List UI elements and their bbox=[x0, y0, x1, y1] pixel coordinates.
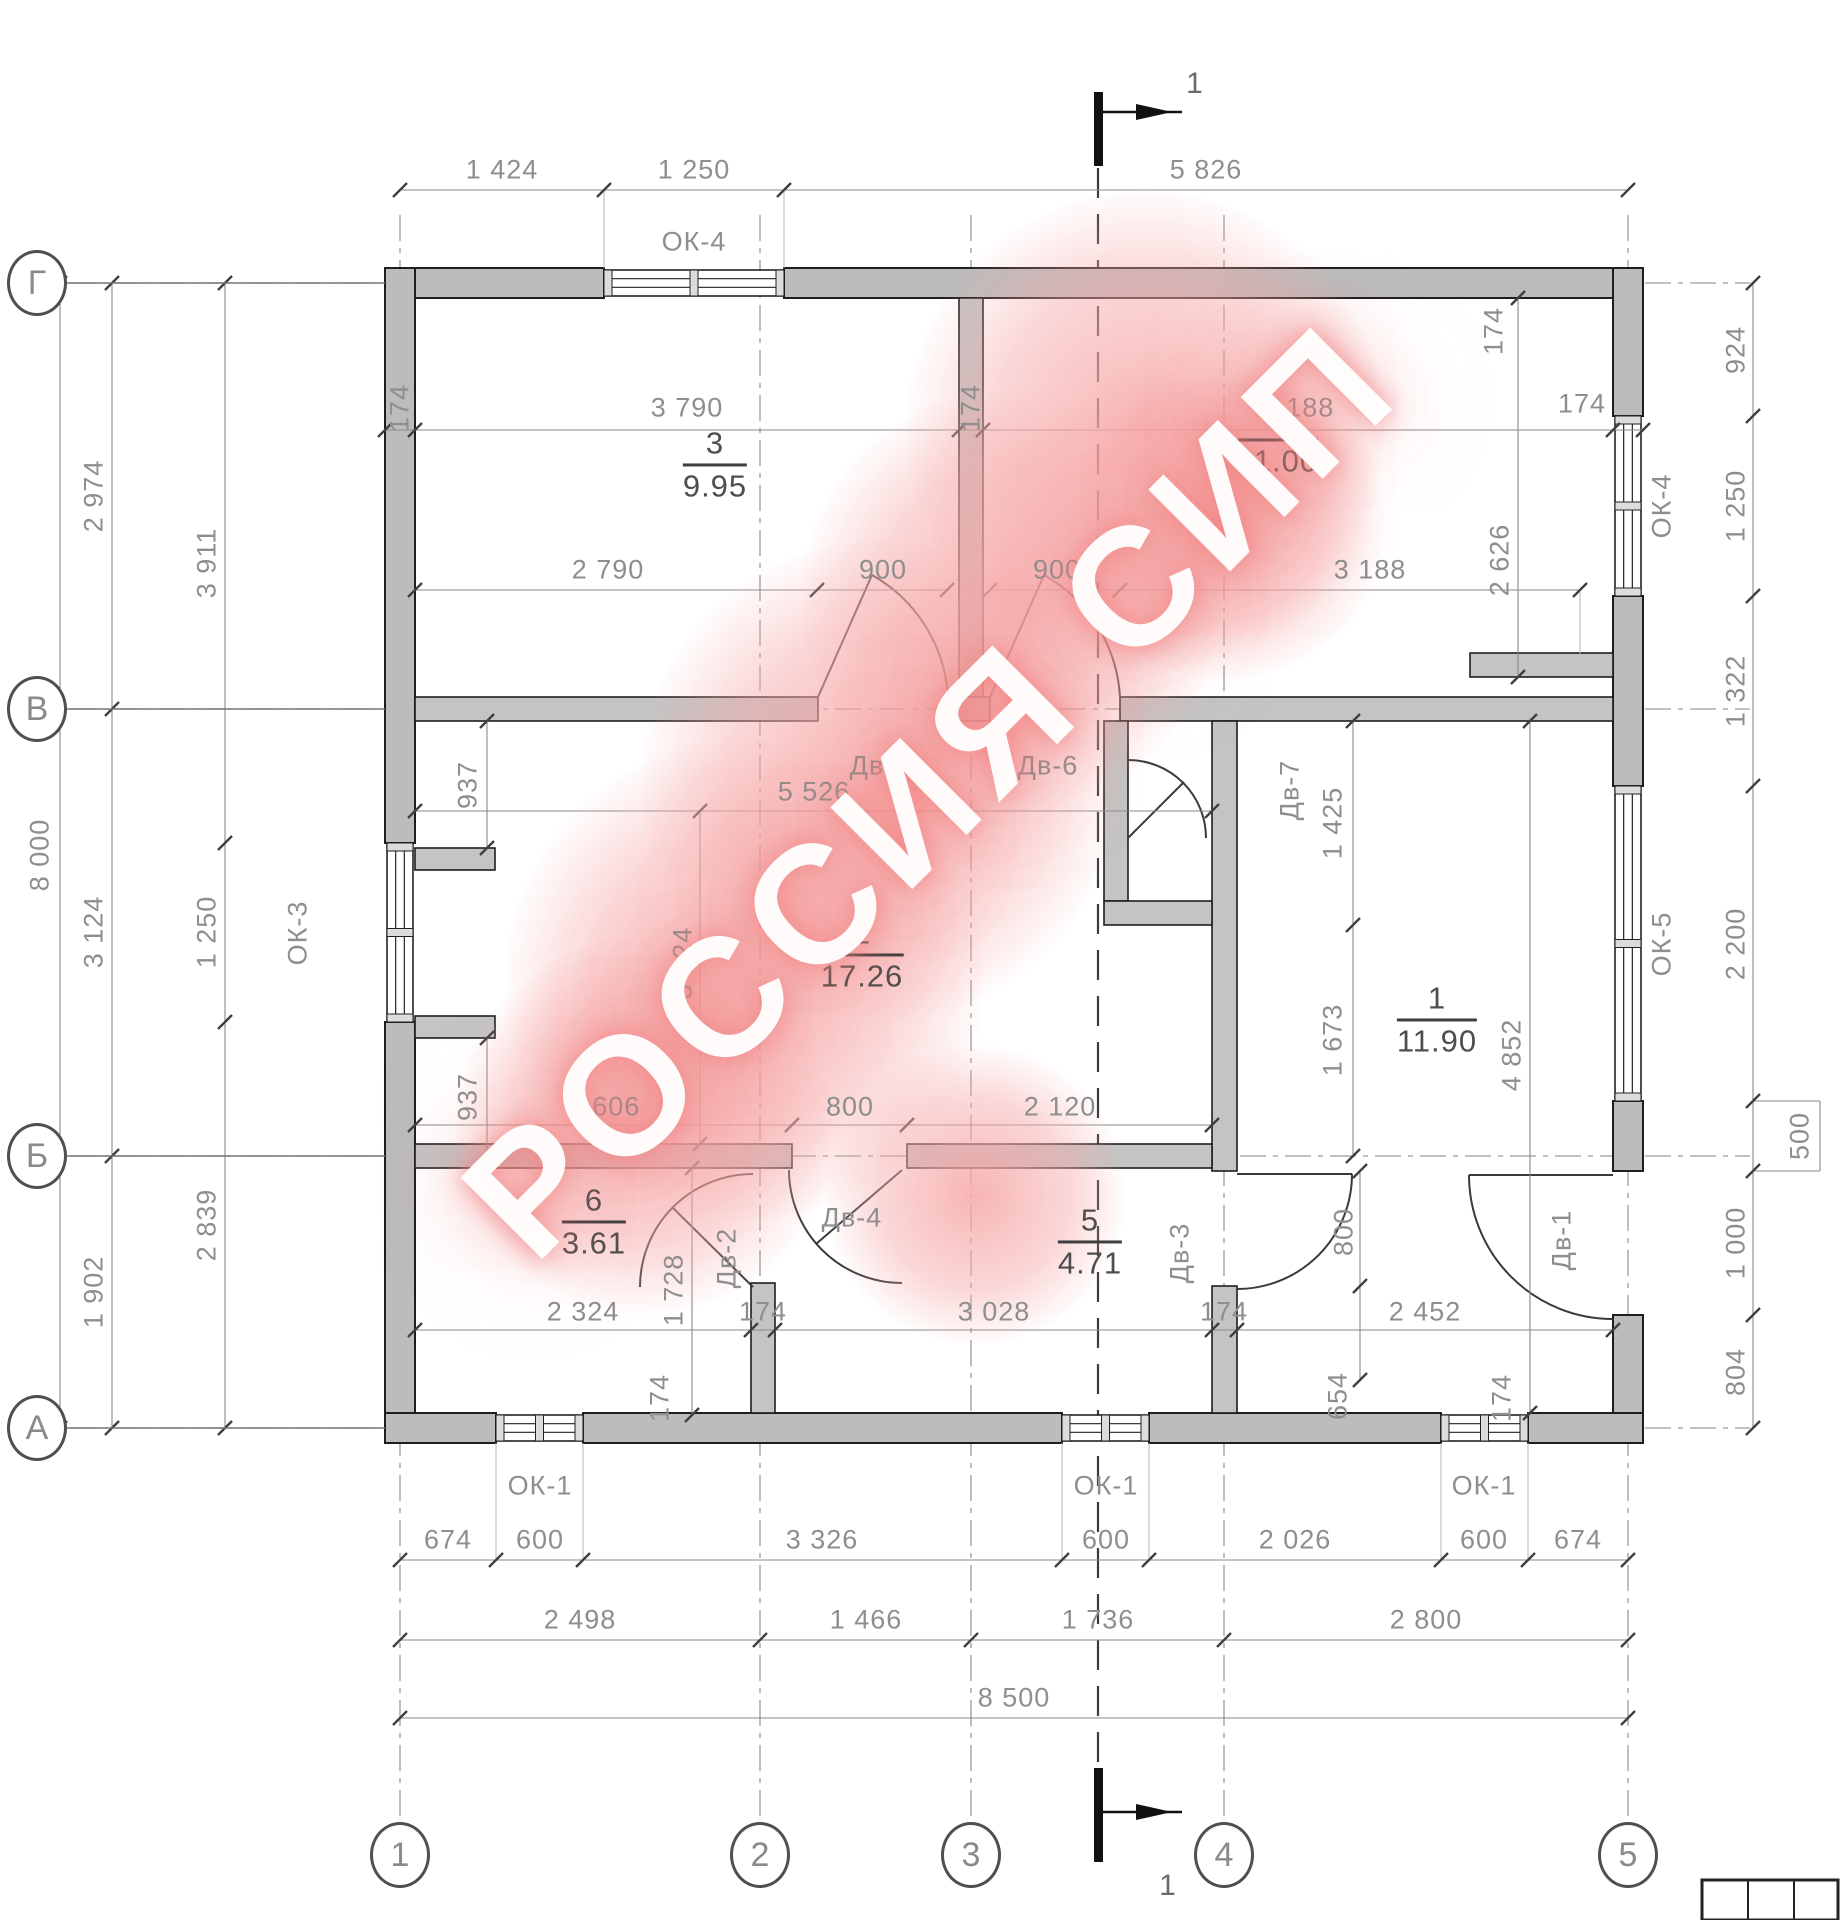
door-label: Дв-4 bbox=[822, 1205, 883, 1232]
section-label: 1 bbox=[1186, 69, 1204, 99]
door-label: Дв-7 bbox=[1277, 760, 1304, 821]
dimension-label: 174 bbox=[1481, 307, 1508, 355]
window-label: ОК-4 bbox=[1649, 474, 1676, 539]
dimension-label: 1 424 bbox=[466, 157, 539, 184]
dimension-label: 654 bbox=[1325, 1372, 1352, 1420]
axis-bubble-column: 1 bbox=[370, 1822, 430, 1888]
dimension-label: 2 790 bbox=[572, 557, 645, 584]
dimension-label: 174 bbox=[387, 384, 414, 432]
dimension-label: 174 bbox=[739, 1299, 787, 1326]
axis-bubble-row: В bbox=[7, 676, 67, 742]
dimension-label: 600 bbox=[516, 1527, 564, 1554]
dimension-label: 800 bbox=[826, 1094, 874, 1121]
dimension-label: 1 250 bbox=[1723, 470, 1750, 543]
dimension-label: 804 bbox=[1723, 1348, 1750, 1396]
room-label-divider bbox=[683, 463, 747, 466]
dimension-label: 2 452 bbox=[1389, 1299, 1462, 1326]
room-label: 111.90 bbox=[1397, 982, 1477, 1057]
dimension-label: 600 bbox=[1460, 1527, 1508, 1554]
dimension-label: 4 852 bbox=[1499, 1019, 1526, 1092]
dimension-label: 1 728 bbox=[661, 1254, 688, 1327]
room-number: 3 bbox=[683, 427, 747, 460]
door-label: Дв-1 bbox=[1549, 1210, 1576, 1271]
axis-bubble-row: Б bbox=[7, 1123, 67, 1189]
dimension-label: 500 bbox=[1787, 1112, 1814, 1160]
axis-bubble-column: 4 bbox=[1194, 1822, 1254, 1888]
dimension-label: 174 bbox=[647, 1374, 674, 1422]
dimension-label: 1 322 bbox=[1723, 655, 1750, 728]
labels-layer: 1 4241 2505 826ОК-4118 0002 9743 1241 90… bbox=[0, 0, 1840, 1920]
room-area: 11.90 bbox=[1397, 1025, 1477, 1058]
dimension-label: 1 466 bbox=[830, 1607, 903, 1634]
axis-bubble-row: А bbox=[7, 1395, 67, 1461]
dimension-label: 1 425 bbox=[1320, 787, 1347, 860]
dimension-label: 1 673 bbox=[1320, 1004, 1347, 1077]
room-area: 4.71 bbox=[1058, 1247, 1122, 1280]
room-label: 39.95 bbox=[683, 427, 747, 502]
dimension-label: 1 250 bbox=[194, 896, 221, 969]
room-label-divider bbox=[1058, 1240, 1122, 1243]
dimension-label: 2 626 bbox=[1487, 524, 1514, 597]
dimension-label: 2 800 bbox=[1390, 1607, 1463, 1634]
axis-bubble-column: 3 bbox=[941, 1822, 1001, 1888]
dimension-label: 2 974 bbox=[81, 460, 108, 533]
dimension-label: 174 bbox=[1489, 1374, 1516, 1422]
axis-bubble-row: Г bbox=[7, 250, 67, 316]
dimension-label: 937 bbox=[455, 761, 482, 809]
section-label: 1 bbox=[1159, 1871, 1177, 1901]
dimension-label: 1 000 bbox=[1723, 1207, 1750, 1280]
room-label-divider bbox=[1397, 1018, 1477, 1021]
dimension-label: 2 200 bbox=[1723, 908, 1750, 981]
room-number: 5 bbox=[1058, 1204, 1122, 1237]
dimension-label: 3 911 bbox=[194, 528, 221, 599]
window-label: ОК-1 bbox=[508, 1473, 573, 1500]
dimension-label: 800 bbox=[1331, 1208, 1358, 1256]
dimension-label: 1 736 bbox=[1062, 1607, 1135, 1634]
window-label: ОК-3 bbox=[285, 901, 312, 966]
dimension-label: 3 790 bbox=[651, 395, 724, 422]
dimension-label: 174 bbox=[1558, 391, 1606, 418]
window-label: ОК-1 bbox=[1452, 1473, 1517, 1500]
dimension-label: 174 bbox=[1200, 1299, 1248, 1326]
door-label: Дв-2 bbox=[714, 1228, 741, 1289]
dimension-label: 3 326 bbox=[786, 1527, 859, 1554]
dimension-label: 2 498 bbox=[544, 1607, 617, 1634]
dimension-label: 8 000 bbox=[27, 819, 54, 892]
dimension-label: 674 bbox=[424, 1527, 472, 1554]
dimension-label: 900 bbox=[859, 557, 907, 584]
dimension-label: 1 250 bbox=[658, 157, 731, 184]
dimension-label: 3 188 bbox=[1334, 557, 1407, 584]
window-label: ОК-5 bbox=[1649, 912, 1676, 977]
room-area: 9.95 bbox=[683, 470, 747, 503]
dimension-label: 174 bbox=[958, 384, 985, 432]
dimension-label: 8 500 bbox=[978, 1685, 1051, 1712]
dimension-label: 5 826 bbox=[1170, 157, 1243, 184]
dimension-label: 674 bbox=[1554, 1527, 1602, 1554]
door-label: Дв-3 bbox=[1167, 1223, 1194, 1284]
room-label: 54.71 bbox=[1058, 1204, 1122, 1279]
dimension-label: 3 124 bbox=[81, 896, 108, 969]
axis-bubble-column: 2 bbox=[730, 1822, 790, 1888]
dimension-label: 1 902 bbox=[81, 1256, 108, 1329]
floorplan-canvas: 1 4241 2505 826ОК-4118 0002 9743 1241 90… bbox=[0, 0, 1840, 1920]
dimension-label: 600 bbox=[1082, 1527, 1130, 1554]
window-label: ОК-4 bbox=[662, 229, 727, 256]
window-label: ОК-1 bbox=[1074, 1473, 1139, 1500]
dimension-label: 2 026 bbox=[1259, 1527, 1332, 1554]
axis-bubble-column: 5 bbox=[1598, 1822, 1658, 1888]
dimension-label: 2 839 bbox=[194, 1189, 221, 1262]
room-number: 1 bbox=[1397, 982, 1477, 1015]
dimension-label: 2 324 bbox=[547, 1299, 620, 1326]
dimension-label: 2 120 bbox=[1024, 1094, 1097, 1121]
dimension-label: 3 028 bbox=[958, 1299, 1031, 1326]
dimension-label: 924 bbox=[1723, 326, 1750, 374]
